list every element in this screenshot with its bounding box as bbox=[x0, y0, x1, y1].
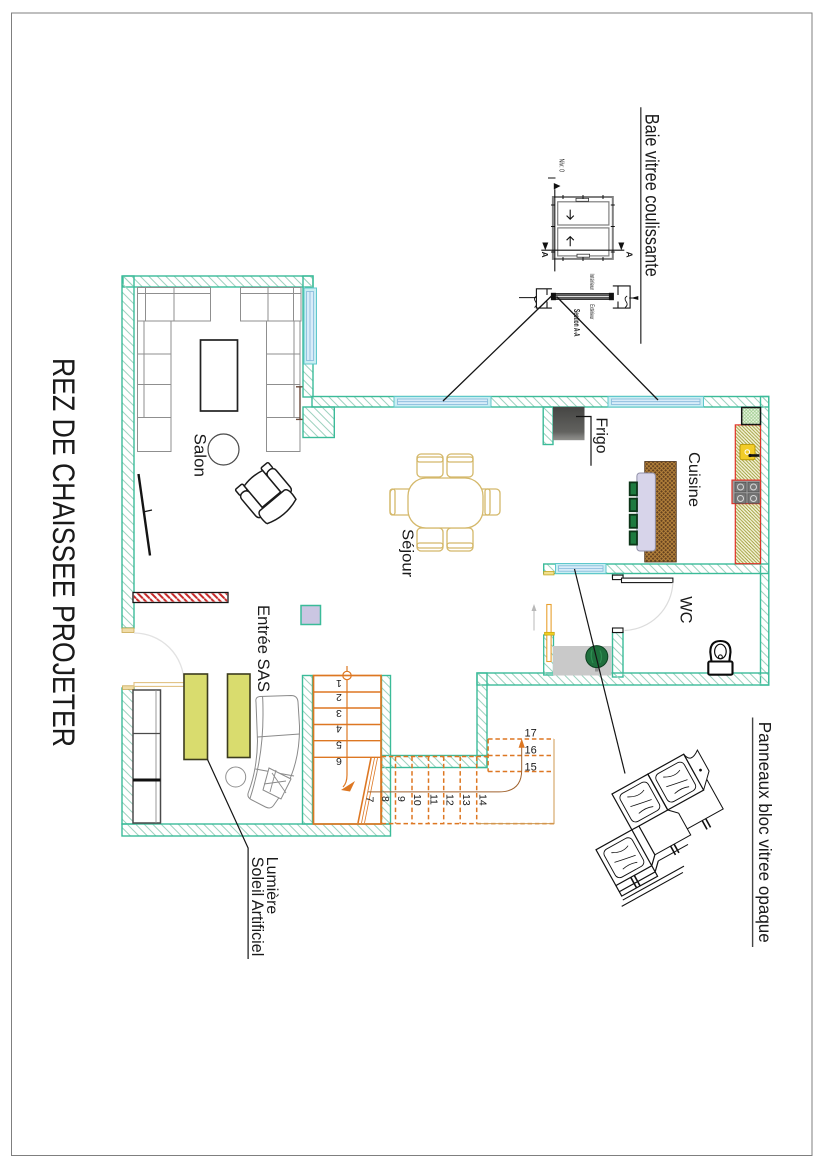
svg-text:Baie vitree coulissante: Baie vitree coulissante bbox=[640, 114, 661, 277]
svg-text:A: A bbox=[625, 252, 635, 258]
svg-text:Salon: Salon bbox=[190, 434, 209, 478]
svg-text:Panneaux bloc vitree opaque: Panneaux bloc vitree opaque bbox=[755, 722, 775, 943]
svg-text:6: 6 bbox=[336, 755, 342, 767]
svg-text:9: 9 bbox=[395, 796, 407, 802]
svg-text:Cuisine: Cuisine bbox=[685, 452, 702, 507]
svg-text:3: 3 bbox=[336, 707, 342, 719]
svg-text:Séjour: Séjour bbox=[398, 529, 415, 577]
svg-text:14: 14 bbox=[477, 794, 489, 806]
svg-text:Frigo: Frigo bbox=[593, 418, 610, 454]
svg-text:Extérieur: Extérieur bbox=[588, 304, 595, 319]
svg-text:WC: WC bbox=[677, 596, 695, 623]
svg-text:A: A bbox=[540, 252, 550, 258]
svg-text:13: 13 bbox=[460, 794, 472, 806]
svg-text:4: 4 bbox=[336, 723, 342, 735]
svg-text:Intérieur: Intérieur bbox=[588, 274, 595, 291]
svg-text:16: 16 bbox=[525, 745, 537, 757]
svg-text:5: 5 bbox=[336, 739, 342, 751]
svg-text:8: 8 bbox=[379, 796, 391, 802]
svg-text:REZ DE CHAISSEE PROJETER: REZ DE CHAISSEE PROJETER bbox=[46, 358, 82, 747]
svg-text:15: 15 bbox=[525, 762, 537, 774]
svg-text:11: 11 bbox=[428, 794, 440, 805]
svg-text:7: 7 bbox=[364, 797, 376, 803]
svg-text:Niv: 0: Niv: 0 bbox=[558, 159, 565, 173]
svg-text:2: 2 bbox=[336, 691, 342, 703]
svg-text:1: 1 bbox=[336, 677, 342, 689]
svg-text:12: 12 bbox=[444, 794, 456, 806]
svg-text:Soleil Artificiel: Soleil Artificiel bbox=[248, 857, 267, 957]
svg-text:Entrée SAS: Entrée SAS bbox=[254, 605, 273, 692]
svg-text:10: 10 bbox=[411, 794, 423, 806]
svg-text:17: 17 bbox=[525, 728, 537, 740]
